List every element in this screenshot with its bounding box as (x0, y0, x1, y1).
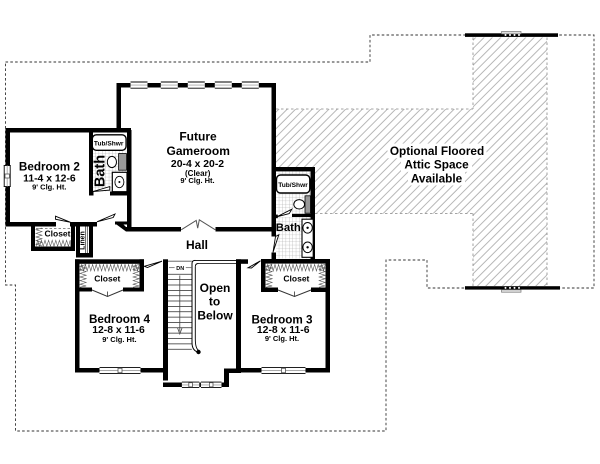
svg-text:9' Clg. Ht.: 9' Clg. Ht. (102, 335, 136, 344)
svg-text:9' Clg. Ht.: 9' Clg. Ht. (265, 334, 299, 343)
svg-text:Bath: Bath (92, 155, 108, 187)
svg-text:Closet: Closet (45, 228, 71, 238)
svg-text:Linen: Linen (79, 231, 86, 250)
svg-text:9' Clg. Ht.: 9' Clg. Ht. (180, 176, 214, 185)
svg-text:Below: Below (197, 309, 233, 323)
svg-text:Open: Open (200, 281, 231, 295)
svg-text:Tub/Shwr: Tub/Shwr (278, 182, 308, 189)
svg-text:DN: DN (176, 266, 184, 272)
svg-text:Closet: Closet (94, 273, 120, 283)
svg-text:Bedroom 2: Bedroom 2 (19, 161, 81, 174)
svg-text:Closet: Closet (283, 274, 309, 284)
svg-text:Tub/Shwr: Tub/Shwr (94, 140, 124, 147)
svg-text:Attic Space: Attic Space (404, 158, 469, 172)
svg-text:Hall: Hall (186, 238, 208, 252)
svg-text:9' Clg. Ht.: 9' Clg. Ht. (32, 183, 66, 192)
svg-text:Available: Available (411, 172, 463, 186)
svg-text:Gameroom: Gameroom (167, 144, 230, 158)
svg-text:Bath: Bath (276, 222, 301, 234)
svg-text:Future: Future (179, 129, 217, 143)
svg-text:Bedroom 4: Bedroom 4 (89, 313, 151, 326)
svg-text:to: to (209, 295, 220, 309)
svg-text:Optional Floored: Optional Floored (390, 144, 484, 158)
